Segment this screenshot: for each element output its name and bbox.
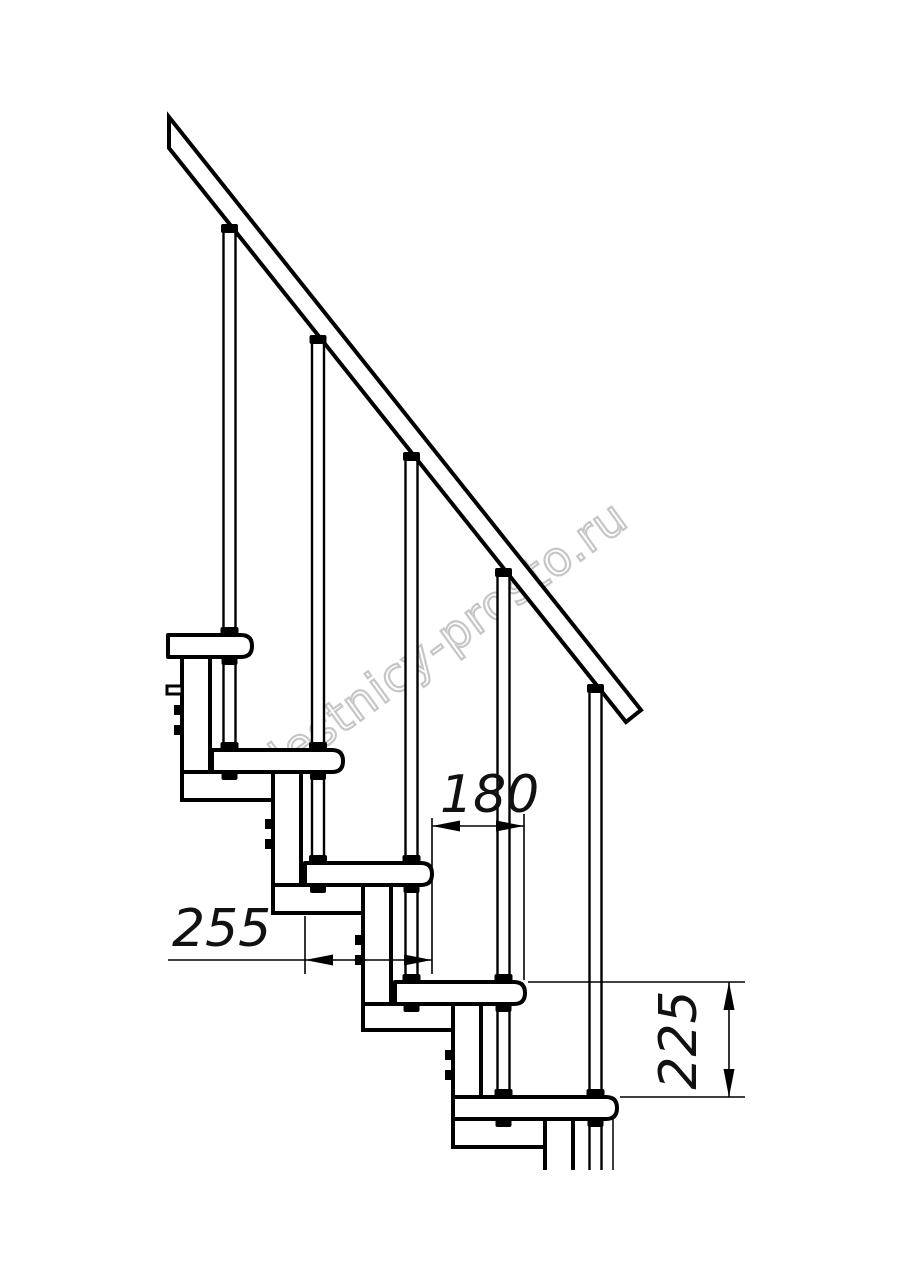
baluster-4 bbox=[498, 577, 510, 1097]
baluster-cap bbox=[495, 974, 513, 982]
arrow-up bbox=[724, 982, 735, 1010]
baluster-top-cap bbox=[310, 335, 327, 344]
module-2-bolt bbox=[265, 819, 273, 829]
arrow-down bbox=[724, 1069, 735, 1097]
arrow-left bbox=[305, 955, 333, 966]
baluster-3 bbox=[406, 461, 418, 982]
baluster-nut bbox=[404, 1004, 420, 1012]
baluster-cap bbox=[495, 1089, 513, 1097]
tread-5 bbox=[453, 1097, 617, 1119]
module-1-bolt bbox=[174, 725, 182, 735]
baluster-cap bbox=[587, 1089, 605, 1097]
baluster-nut bbox=[404, 885, 420, 893]
stair-drawing-canvas: lestnicy-prosto.ru bbox=[0, 0, 914, 1280]
baluster-top-cap bbox=[587, 684, 604, 693]
baluster-1 bbox=[224, 233, 236, 750]
dimension-value-180: 180 bbox=[440, 765, 539, 825]
baluster-nut bbox=[496, 1004, 512, 1012]
baluster-cap bbox=[309, 855, 327, 863]
dimension-going: 180 bbox=[432, 765, 539, 980]
baluster-nut bbox=[222, 657, 238, 665]
baluster-cap bbox=[221, 742, 239, 750]
module-4 bbox=[445, 1004, 545, 1147]
dimension-rise: 225 bbox=[528, 982, 745, 1097]
dimension-value-255: 255 bbox=[172, 899, 271, 959]
baluster-top-cap bbox=[221, 224, 238, 233]
baluster-cap bbox=[403, 855, 421, 863]
module-2-bolt bbox=[265, 839, 273, 849]
baluster-nut bbox=[222, 772, 238, 780]
module-4-bolt bbox=[445, 1050, 453, 1060]
tread-4 bbox=[395, 982, 525, 1004]
baluster-2 bbox=[312, 344, 324, 863]
dimension-value-225: 225 bbox=[649, 990, 709, 1089]
module-4-bolt bbox=[445, 1070, 453, 1080]
module-1-bolt bbox=[174, 705, 182, 715]
baluster-cap bbox=[403, 974, 421, 982]
tread-1 bbox=[168, 635, 252, 657]
module-5 bbox=[545, 1119, 573, 1170]
baluster-nut bbox=[496, 1119, 512, 1127]
baluster-top-cap bbox=[495, 568, 512, 577]
tread-2 bbox=[212, 750, 343, 772]
baluster-nut bbox=[588, 1119, 604, 1127]
baluster-cap bbox=[221, 627, 239, 635]
tread-3 bbox=[305, 863, 432, 885]
stair-drawing: lestnicy-prosto.ru bbox=[0, 0, 914, 1280]
baluster-nut bbox=[310, 772, 326, 780]
baluster-cap bbox=[309, 742, 327, 750]
module-3-bolt bbox=[355, 935, 363, 945]
module-1-bracket bbox=[167, 686, 182, 694]
baluster-nut bbox=[310, 885, 326, 893]
baluster-top-cap bbox=[403, 452, 420, 461]
module-1 bbox=[167, 657, 273, 800]
